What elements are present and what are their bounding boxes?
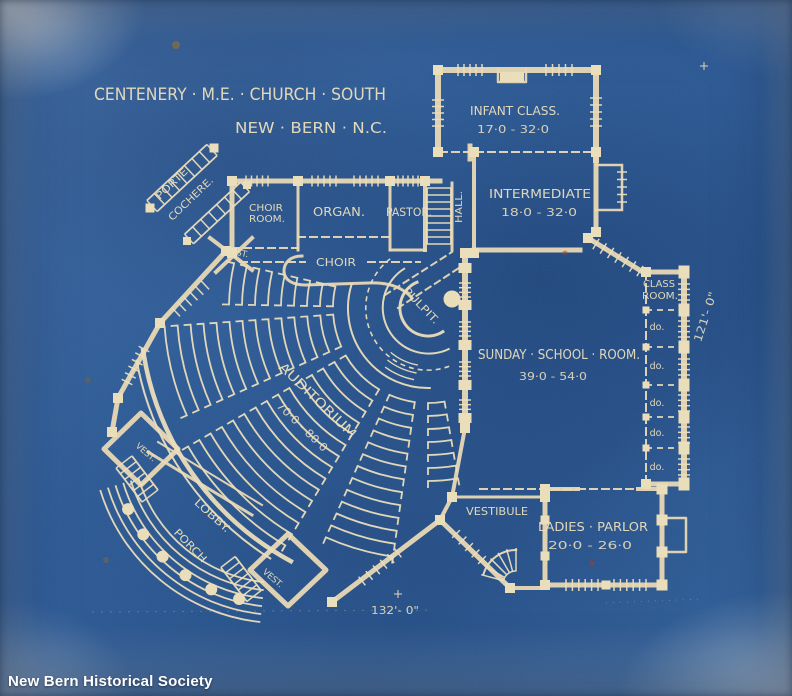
blueprint-sheet: CENTENERY · M.E. · CHURCH · SOUTH NEW · … <box>0 0 792 696</box>
credit-watermark: New Bern Historical Society <box>8 673 213 690</box>
paper-grain <box>0 0 792 696</box>
floor-plan: CENTENERY · M.E. · CHURCH · SOUTH NEW · … <box>0 0 792 696</box>
